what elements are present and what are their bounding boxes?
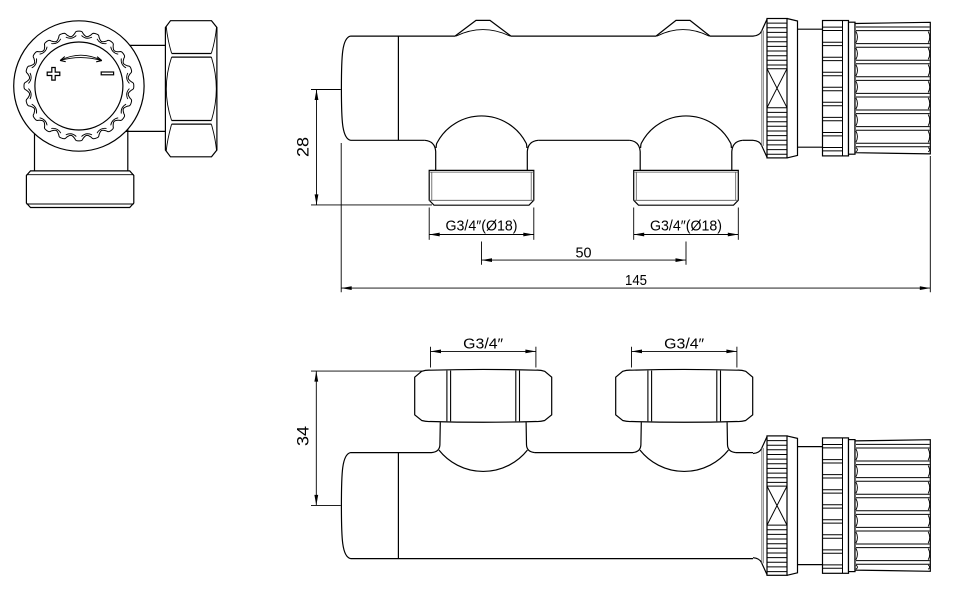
svg-text:50: 50 bbox=[576, 245, 592, 262]
svg-text:G3/4″(Ø18): G3/4″(Ø18) bbox=[446, 218, 518, 235]
svg-text:G3/4″(Ø18): G3/4″(Ø18) bbox=[650, 218, 722, 235]
svg-text:G3/4″: G3/4″ bbox=[463, 336, 504, 353]
svg-text:28: 28 bbox=[295, 137, 313, 157]
svg-text:34: 34 bbox=[294, 426, 312, 446]
svg-text:G3/4″: G3/4″ bbox=[664, 336, 705, 353]
svg-text:145: 145 bbox=[625, 272, 647, 289]
